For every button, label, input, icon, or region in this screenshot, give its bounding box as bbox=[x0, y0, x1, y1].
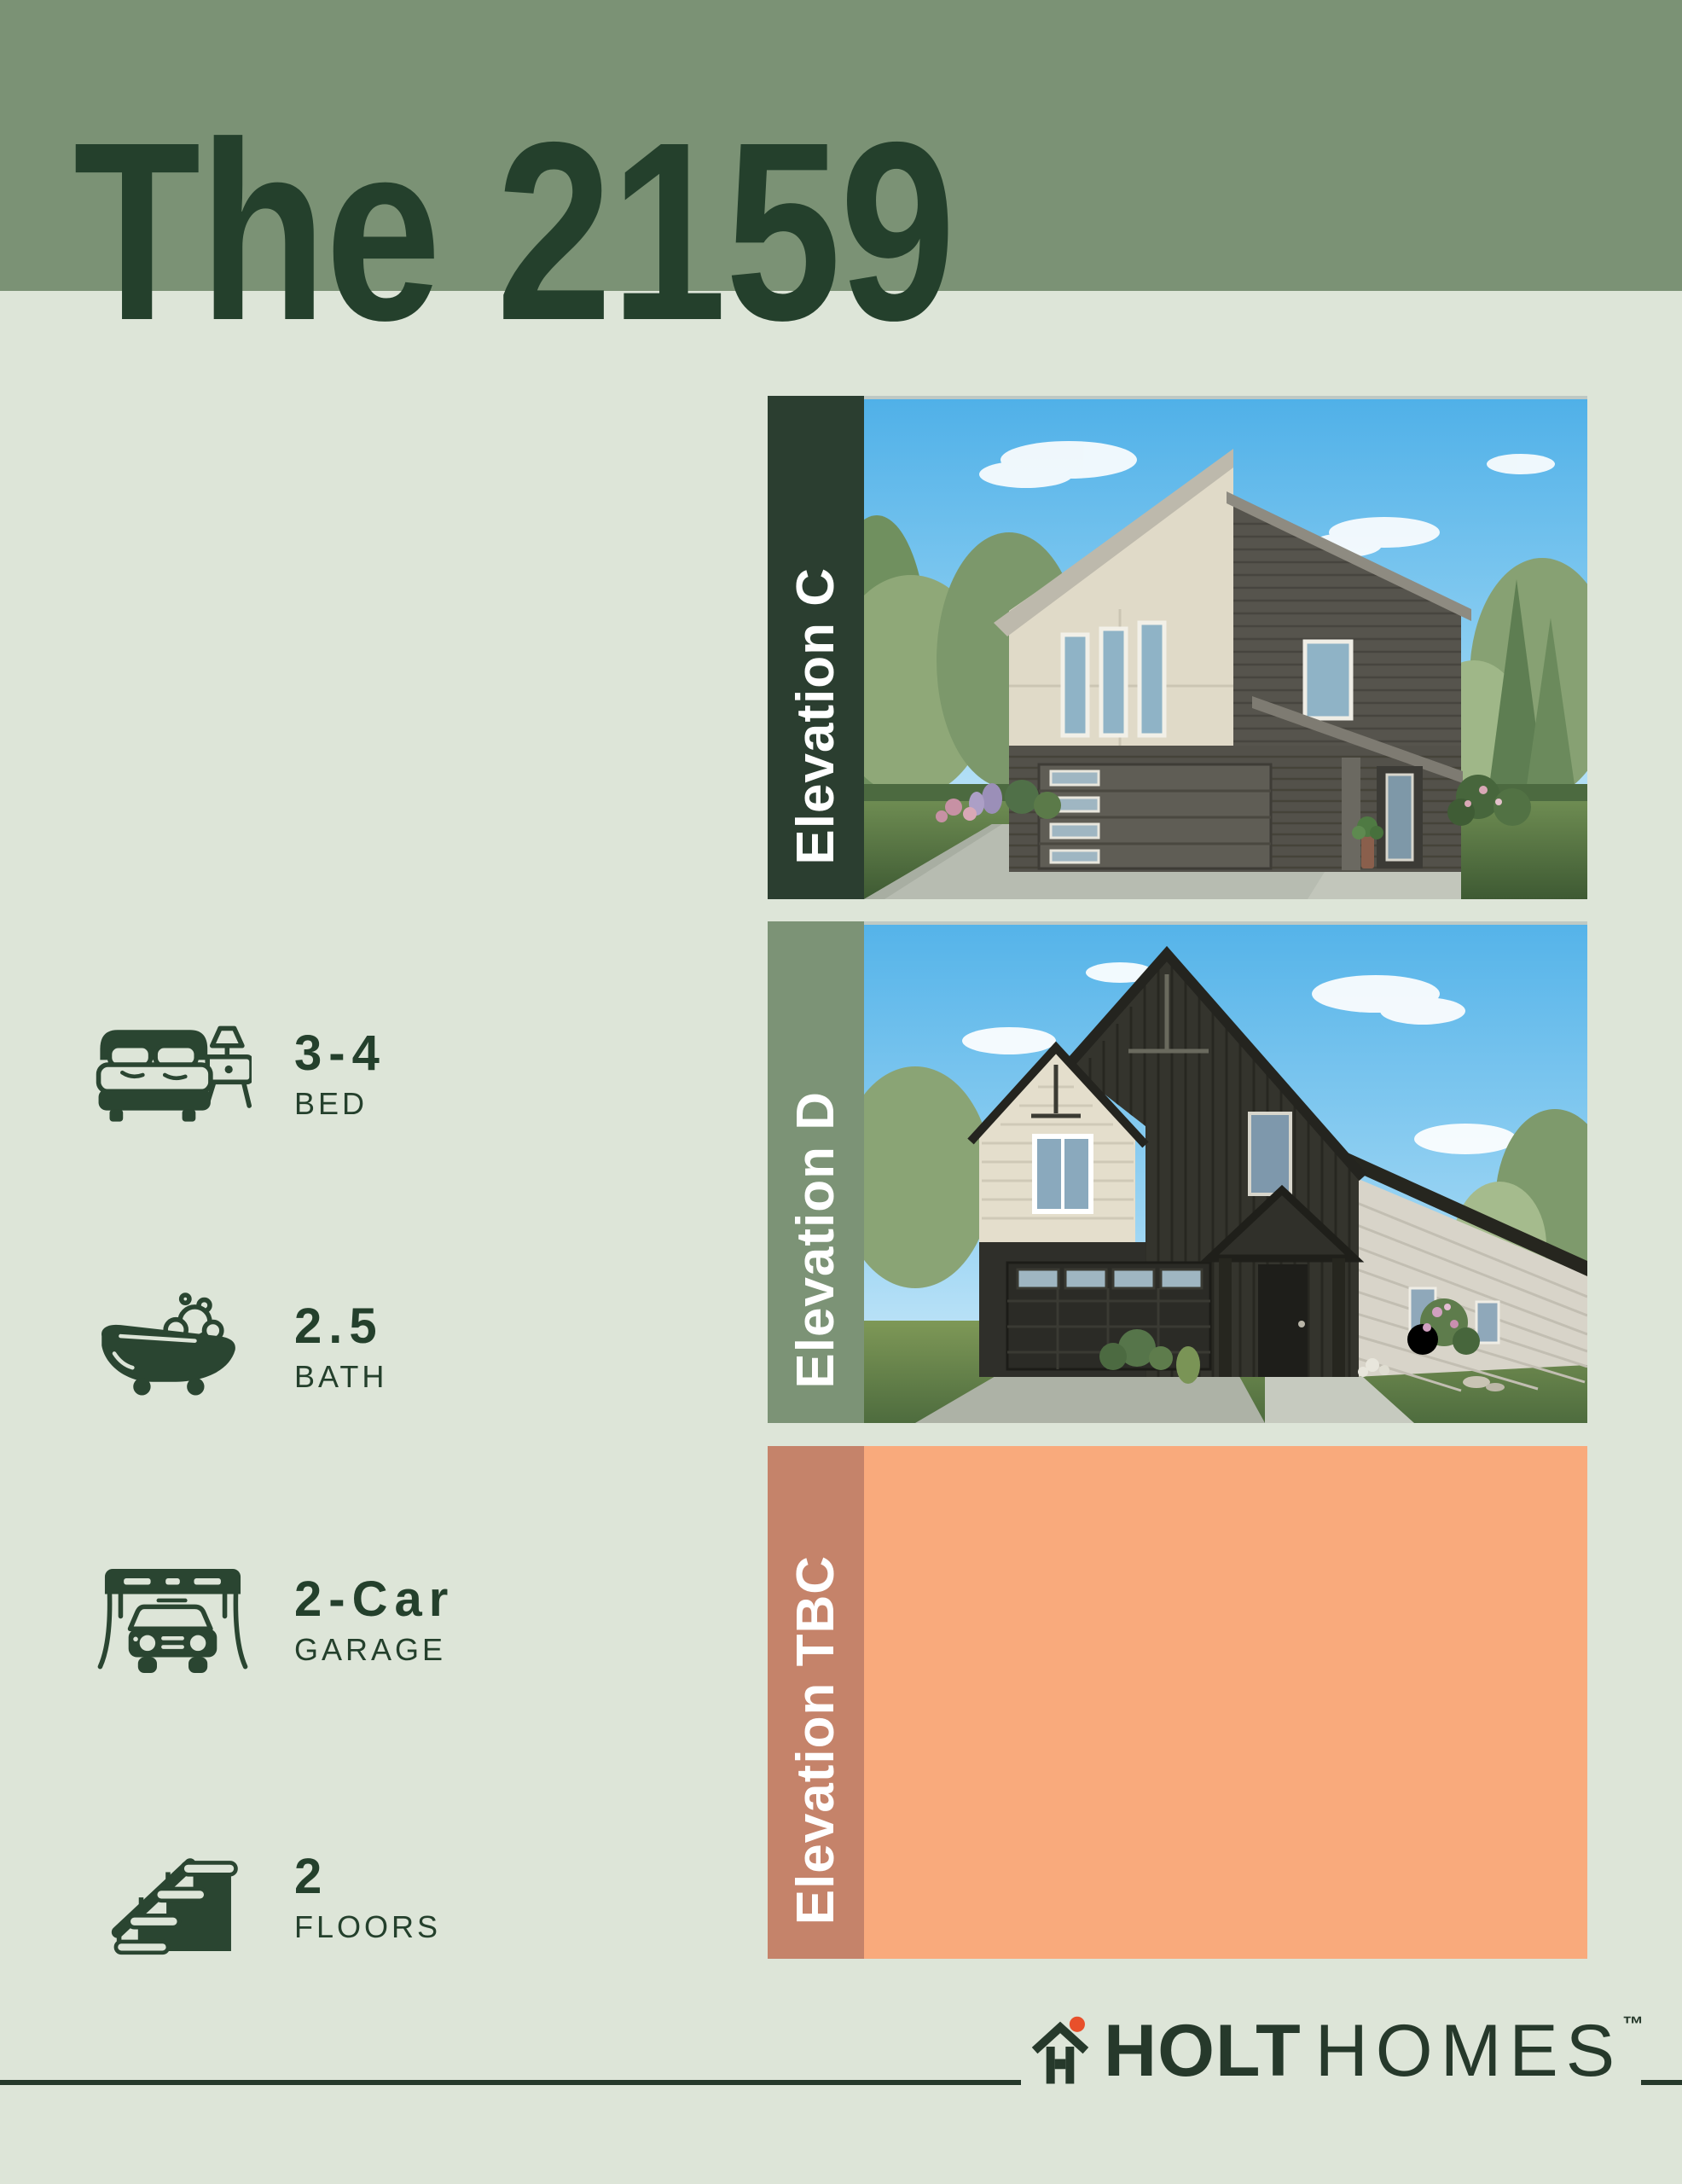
page-title: The 2159 bbox=[73, 118, 954, 346]
bathtub-icon bbox=[94, 1284, 252, 1412]
footer-rule-left bbox=[0, 2080, 1021, 2085]
holt-homes-logo: HOLT HOMES ™ bbox=[1025, 2014, 1644, 2088]
feature-garage-text: 2-Car GARAGE bbox=[294, 1574, 455, 1667]
trademark-symbol: ™ bbox=[1622, 2014, 1644, 2036]
feature-bath: 2.5 BATH bbox=[94, 1284, 387, 1412]
feature-bath-text: 2.5 BATH bbox=[294, 1301, 387, 1394]
elevation-tbc-bar: Elevation TBC bbox=[768, 1446, 864, 1959]
brand-name-secondary: HOMES bbox=[1315, 2014, 1622, 2088]
elevation-tbc-label: Elevation TBC bbox=[786, 1555, 846, 1925]
feature-floors-value: 2 bbox=[294, 1851, 441, 1902]
elevation-tbc-panel: Elevation TBC bbox=[768, 1446, 1587, 1959]
stairs-icon bbox=[94, 1834, 252, 1962]
bed-icon bbox=[94, 1011, 252, 1139]
feature-garage-value: 2-Car bbox=[294, 1574, 455, 1624]
feature-bath-label: BATH bbox=[294, 1359, 387, 1395]
elevation-d-rendering bbox=[864, 921, 1587, 1423]
elevation-c-photo bbox=[864, 396, 1587, 899]
feature-bed-label: BED bbox=[294, 1086, 386, 1122]
feature-garage-label: GARAGE bbox=[294, 1632, 455, 1668]
brand-name-primary: HOLT bbox=[1104, 2014, 1302, 2088]
feature-bed-value: 3-4 bbox=[294, 1028, 386, 1078]
garage-icon bbox=[94, 1557, 252, 1685]
footer-rule-right bbox=[1641, 2080, 1682, 2085]
elevation-d-bar: Elevation D bbox=[768, 921, 864, 1423]
elevation-d-photo bbox=[864, 921, 1587, 1423]
elevation-d-label: Elevation D bbox=[786, 1091, 846, 1389]
flyer-page: The 2159 bbox=[0, 0, 1682, 2184]
feature-bath-value: 2.5 bbox=[294, 1301, 387, 1351]
feature-bed-text: 3-4 BED bbox=[294, 1028, 386, 1121]
elevation-c-rendering bbox=[864, 396, 1587, 899]
feature-floors: 2 FLOORS bbox=[94, 1834, 441, 1962]
feature-floors-label: FLOORS bbox=[294, 1909, 441, 1945]
feature-bed: 3-4 BED bbox=[94, 1011, 386, 1139]
elevation-c-bar: Elevation C bbox=[768, 396, 864, 899]
house-logo-icon bbox=[1025, 2014, 1095, 2088]
feature-floors-text: 2 FLOORS bbox=[294, 1851, 441, 1944]
elevation-c-label: Elevation C bbox=[786, 567, 846, 865]
elevation-d-panel: Elevation D bbox=[768, 921, 1587, 1423]
elevation-c-panel: Elevation C bbox=[768, 396, 1587, 899]
feature-garage: 2-Car GARAGE bbox=[94, 1557, 455, 1685]
elevation-tbc-placeholder bbox=[864, 1446, 1587, 1959]
